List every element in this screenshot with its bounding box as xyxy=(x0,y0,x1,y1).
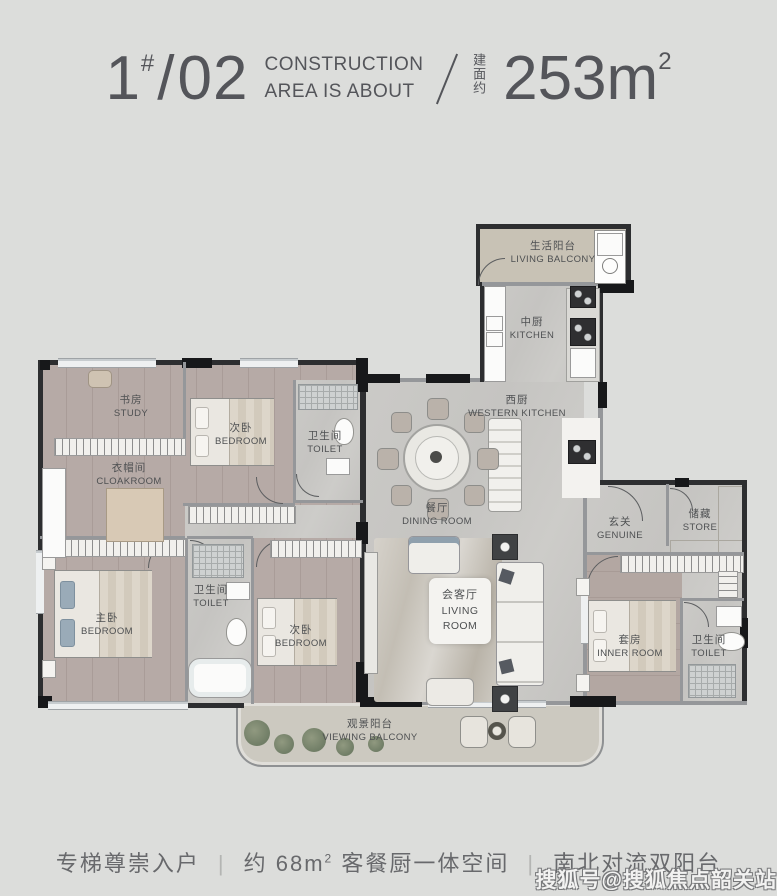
wardrobe xyxy=(54,438,186,456)
construction-line2: AREA IS ABOUT xyxy=(264,79,423,106)
label-cn: 玄关 xyxy=(597,516,643,530)
nightstand xyxy=(42,660,56,678)
armchair xyxy=(408,536,460,574)
room-label-toilet-top: 卫生间TOILET xyxy=(307,430,342,456)
room-label-toilet-right: 卫生间TOILET xyxy=(691,634,726,660)
stove xyxy=(570,318,596,346)
label-en: BEDROOM xyxy=(215,436,267,447)
wall xyxy=(666,484,669,546)
sink xyxy=(226,582,250,600)
closet xyxy=(718,571,738,599)
label-en: VIEWING BALCONY xyxy=(322,732,417,743)
room-label-study: 书房STUDY xyxy=(114,394,148,420)
label-en: CLOAKROOM xyxy=(96,476,161,487)
nightstand xyxy=(576,674,590,692)
nightstand xyxy=(576,578,590,596)
unit-hash: # xyxy=(141,50,155,77)
label-en: GENUINE xyxy=(597,530,643,541)
wall xyxy=(680,600,683,702)
wall xyxy=(426,374,470,383)
unit-slash: / xyxy=(157,44,175,113)
toilet-bowl xyxy=(226,618,247,646)
unit-num: 1 xyxy=(105,44,140,113)
label-cn: 生活阳台 xyxy=(511,240,596,254)
label-en: TOILET xyxy=(307,444,342,455)
cooktop xyxy=(570,286,596,308)
construction-caption: CONSTRUCTION AREA IS ABOUT xyxy=(264,52,423,105)
plant xyxy=(244,720,270,746)
viewing-balcony-floor xyxy=(236,703,604,767)
room-label-toilet-mid: 卫生间TOILET xyxy=(193,584,228,610)
shower-tiles xyxy=(298,384,358,410)
tagline-2-text2: 客餐厨一体空间 xyxy=(333,851,509,876)
balcony-chair xyxy=(460,716,488,748)
label-en: KITCHEN xyxy=(510,330,555,341)
sink xyxy=(716,606,742,627)
tagline-2-sup: 2 xyxy=(325,852,334,866)
shower-tiles xyxy=(192,544,244,578)
label-cn: 会客厅 xyxy=(429,588,491,604)
wall xyxy=(40,360,50,370)
wardrobe xyxy=(270,540,362,558)
dining-chair xyxy=(477,448,499,470)
wall xyxy=(675,478,689,487)
room-label-bedroom-top: 次卧BEDROOM xyxy=(215,422,267,448)
kitchen-sink xyxy=(486,332,503,347)
cloakroom-counter xyxy=(42,468,66,558)
label-cn: 卫生间 xyxy=(193,584,228,598)
window xyxy=(240,358,298,368)
room-label-entrance: 玄关GENUINE xyxy=(597,516,643,542)
room-label-living: 会客厅LIVINGROOM xyxy=(429,578,491,644)
desk-chair xyxy=(88,370,112,388)
label-en: INNER ROOM xyxy=(597,648,663,659)
room-label-cloakroom: 衣帽间CLOAKROOM xyxy=(96,462,161,488)
pillow xyxy=(262,635,276,657)
tagline-1: 专梯尊崇入户 xyxy=(56,851,200,876)
dining-chair xyxy=(391,412,412,433)
label-cn: 卫生间 xyxy=(307,430,342,444)
pillow xyxy=(195,435,209,457)
wall xyxy=(182,358,212,368)
header: 1#/02 CONSTRUCTION AREA IS ABOUT 建面约 253… xyxy=(0,48,777,110)
room-label-dining: 餐厅DINING ROOM xyxy=(402,502,472,528)
room-label-western-kitchen: 西厨WESTERN KITCHEN xyxy=(468,394,566,420)
label-en: ROOM xyxy=(429,619,491,634)
fridge xyxy=(570,348,596,378)
unit-no: 02 xyxy=(178,44,249,113)
washer-drum xyxy=(602,258,618,274)
pillow xyxy=(60,619,75,647)
ottoman xyxy=(426,678,474,706)
room-label-store: 储藏STORE xyxy=(683,508,718,534)
wall xyxy=(293,380,296,502)
label-en: STORE xyxy=(683,522,718,533)
dining-chair xyxy=(427,398,449,420)
sink xyxy=(326,458,350,475)
label-cn: 餐厅 xyxy=(402,502,472,516)
construction-line1: CONSTRUCTION xyxy=(264,52,423,79)
wall xyxy=(187,536,253,539)
label-cn: 中厨 xyxy=(510,316,555,330)
balcony-table xyxy=(488,722,506,740)
label-cn: 书房 xyxy=(114,394,148,408)
kitchen-sink xyxy=(486,316,503,331)
wardrobe xyxy=(188,506,296,524)
wall xyxy=(570,696,616,707)
room-label-viewing-balcony: 观景阳台VIEWING BALCONY xyxy=(322,718,417,744)
area-value: 253m2 xyxy=(503,48,671,110)
label-en: TOILET xyxy=(193,598,228,609)
wall xyxy=(626,224,631,288)
cloakroom-island xyxy=(106,488,164,542)
label-en: LIVING BALCONY xyxy=(511,254,596,265)
pillow xyxy=(262,607,276,629)
label-cn: 次卧 xyxy=(215,422,267,436)
dining-chair xyxy=(377,448,399,470)
label-cn: 观景阳台 xyxy=(322,718,417,732)
label-en: BEDROOM xyxy=(81,626,133,637)
balcony-chair xyxy=(508,716,536,748)
room-label-living-balcony: 生活阳台LIVING BALCONY xyxy=(511,240,596,266)
tv-console xyxy=(364,552,378,674)
bathtub xyxy=(188,658,252,698)
label-cn: 卫生间 xyxy=(691,634,726,648)
pillow xyxy=(593,610,607,633)
room-label-kitchen: 中厨KITCHEN xyxy=(510,316,555,342)
unit-number: 1#/02 xyxy=(105,48,248,110)
wall xyxy=(598,382,607,408)
plant xyxy=(274,734,294,754)
oven xyxy=(568,440,596,464)
pillow xyxy=(60,581,75,609)
tagline-separator: | xyxy=(218,851,226,876)
side-table xyxy=(492,686,518,712)
room-label-bedroom-bottom: 次卧BEDROOM xyxy=(275,624,327,650)
label-cn: 套房 xyxy=(597,634,663,648)
floorplan-page: 1#/02 CONSTRUCTION AREA IS ABOUT 建面约 253… xyxy=(0,0,777,896)
pillow xyxy=(195,407,209,429)
washer xyxy=(597,233,623,256)
label-en: STUDY xyxy=(114,408,148,419)
label-en: WESTERN KITCHEN xyxy=(468,408,566,419)
label-en: BEDROOM xyxy=(275,638,327,649)
area-prefix-cn: 建面约 xyxy=(470,53,488,105)
label-cn: 储藏 xyxy=(683,508,718,522)
room-label-inner-room: 套房INNER ROOM xyxy=(597,634,663,660)
slash-divider xyxy=(436,54,458,105)
window xyxy=(48,701,188,710)
tagline-separator: | xyxy=(527,851,535,876)
label-cn: 衣帽间 xyxy=(96,462,161,476)
table-centerpiece xyxy=(430,451,442,463)
tagline-2: 约 68m2 客餐厨一体空间 xyxy=(244,851,510,876)
label-cn: 西厨 xyxy=(468,394,566,408)
wall xyxy=(742,480,747,704)
label-en: LIVING xyxy=(429,604,491,619)
label-en: DINING ROOM xyxy=(402,516,472,527)
tagline-2-text: 约 68m xyxy=(244,851,325,876)
area-superscript: 2 xyxy=(658,48,671,75)
room-label-master: 主卧BEDROOM xyxy=(81,612,133,638)
label-en: TOILET xyxy=(691,648,726,659)
window xyxy=(58,358,156,368)
floor-plan: 生活阳台LIVING BALCONY 中厨KITCHEN 西厨WESTERN K… xyxy=(30,222,760,770)
label-cn: 主卧 xyxy=(81,612,133,626)
shower-tiles xyxy=(688,664,736,698)
area-number: 253m xyxy=(503,44,658,113)
side-table xyxy=(492,534,518,560)
wall xyxy=(366,374,400,383)
wall xyxy=(293,500,363,503)
watermark: 搜狐号@搜狐焦点韶关站 xyxy=(536,864,777,894)
label-cn: 次卧 xyxy=(275,624,327,638)
wall xyxy=(476,224,630,229)
